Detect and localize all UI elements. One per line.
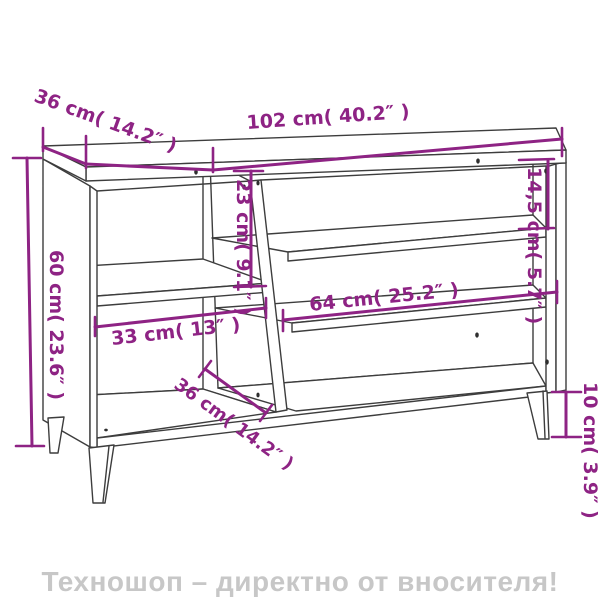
- dimension-leg-height-line: [552, 392, 581, 437]
- dimension-label-left-upper-height: 23 cm( 9.1″ ): [232, 179, 254, 316]
- back-left-leg: [48, 417, 64, 453]
- center-divider: [250, 180, 287, 412]
- front-left-leg: [89, 445, 114, 503]
- cabinet-drawing: [43, 128, 566, 503]
- right-leg: [527, 391, 549, 439]
- store-banner-text: Техношоп – директно от вносителя!: [0, 563, 600, 600]
- dimension-label-right-gap-height: 14,5 cm( 5.7″ ): [523, 167, 545, 324]
- dimension-overall-height-line: [13, 158, 44, 446]
- screenshot-root: 36 cm( 14.2″ ) 102 cm( 40.2″ ) 23 cm( 9.…: [0, 0, 600, 600]
- bottom-board: [52, 363, 546, 448]
- product-dimension-diagram: 36 cm( 14.2″ ) 102 cm( 40.2″ ) 23 cm( 9.…: [0, 0, 600, 600]
- dimension-label-leg-height: 10 cm( 3.9″ ): [579, 382, 600, 519]
- dimension-label-overall-height: 60 cm( 23.6″ ): [45, 250, 67, 400]
- dimension-label-width: 102 cm( 40.2″ ): [246, 101, 410, 134]
